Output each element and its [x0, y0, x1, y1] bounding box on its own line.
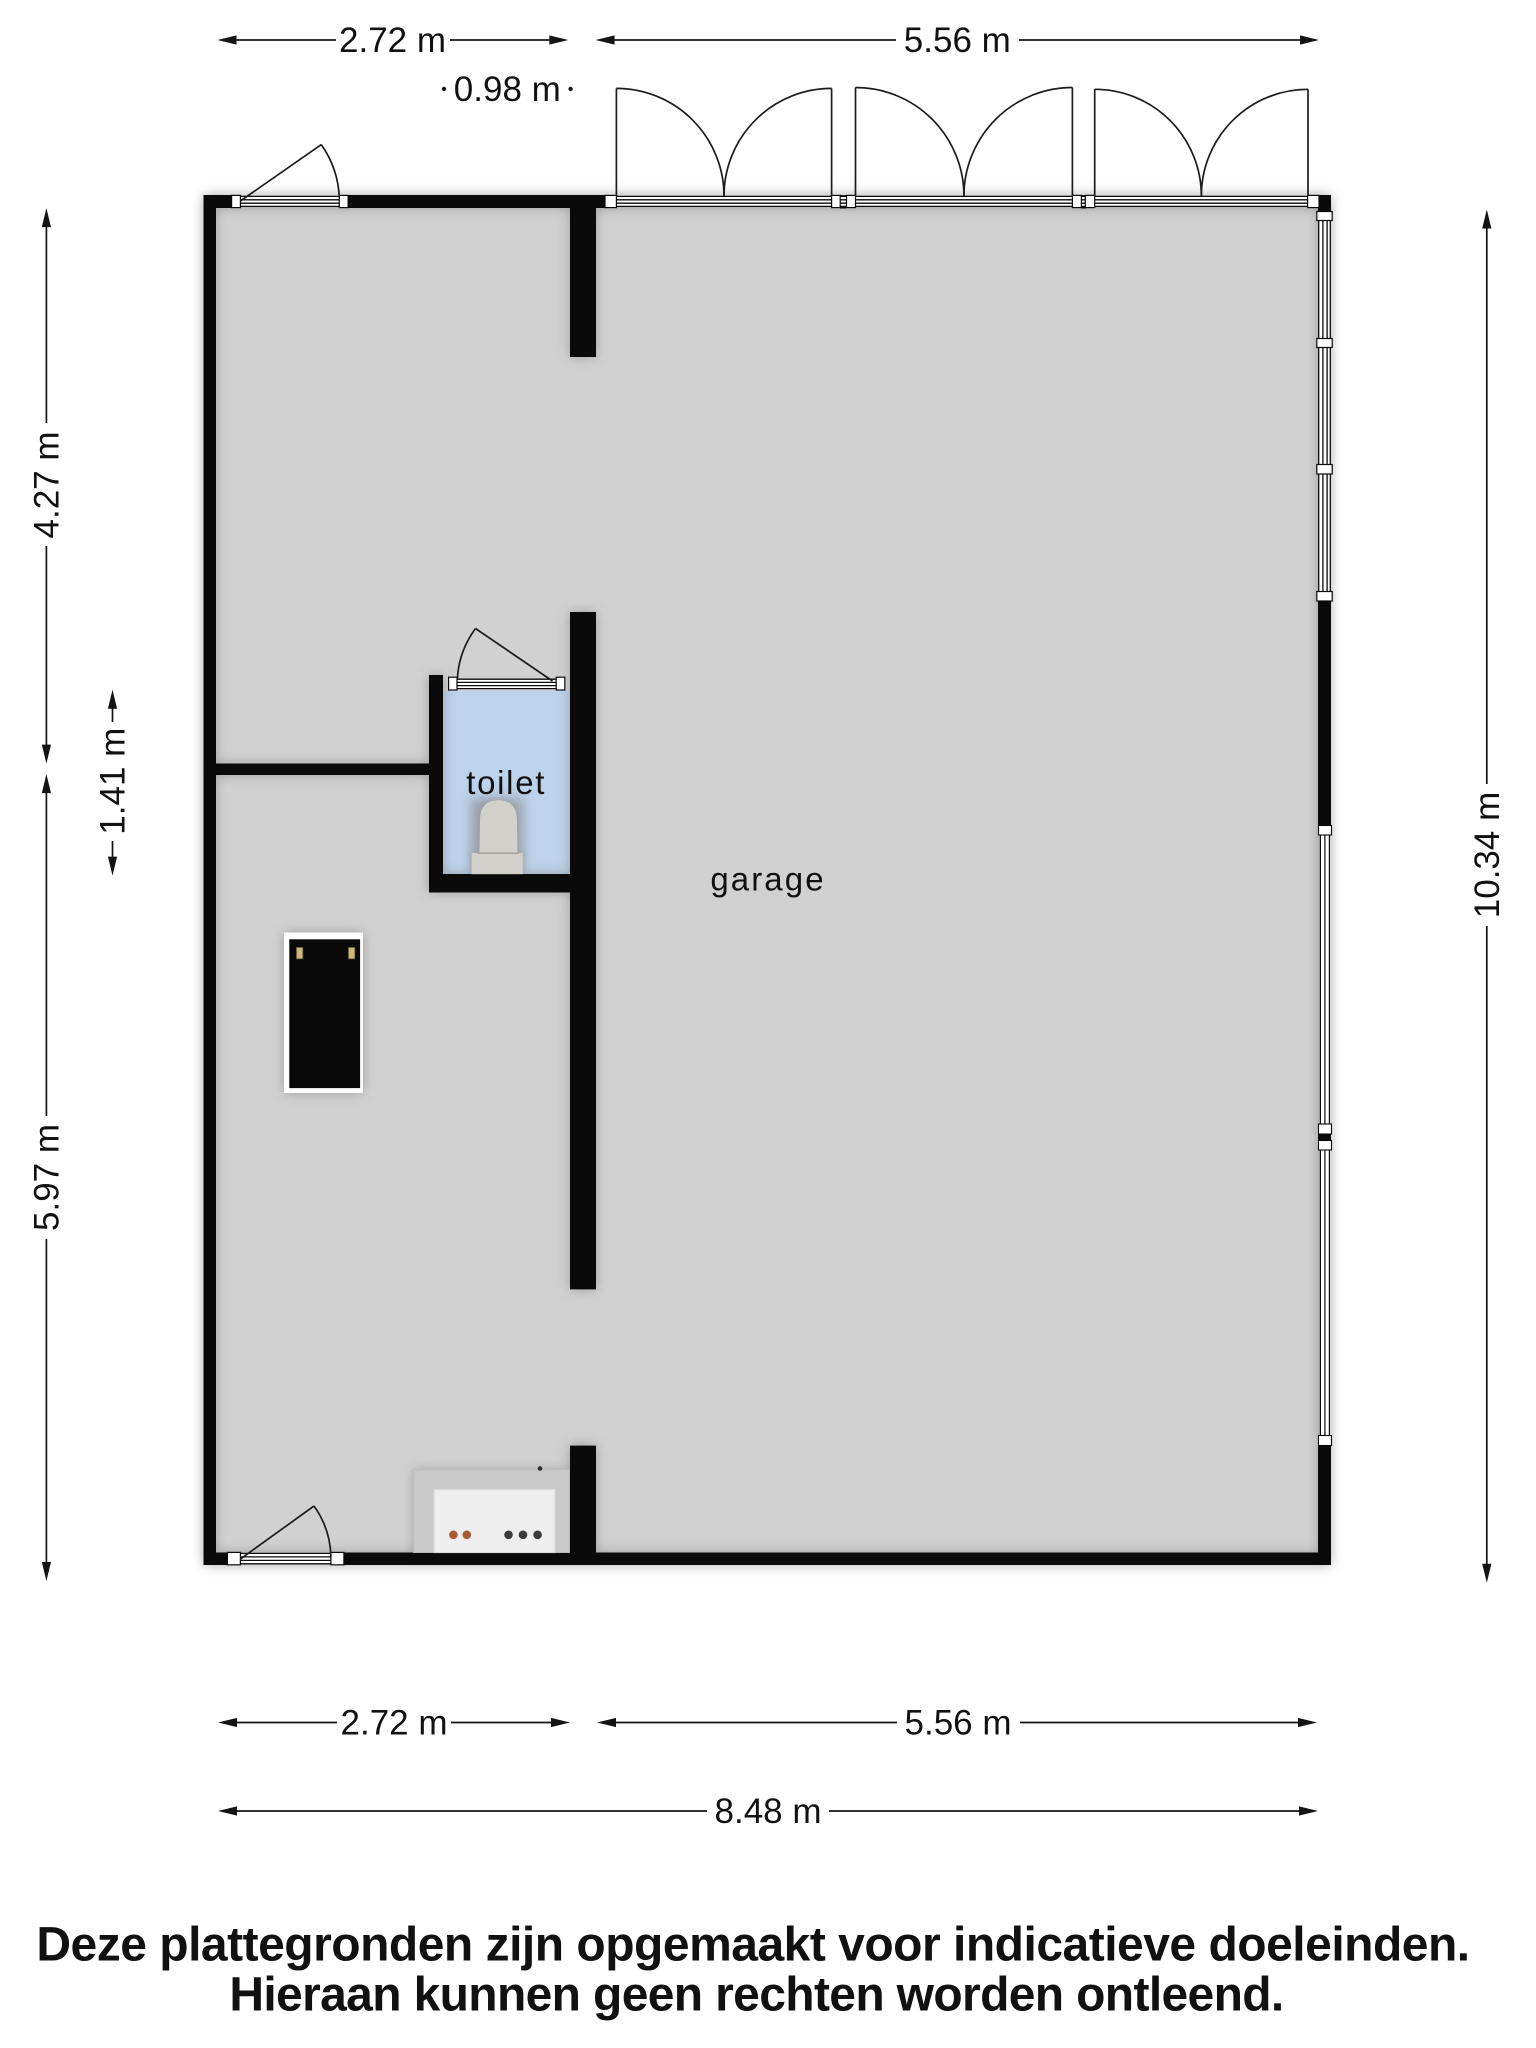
- svg-text:Deze plattegronden zijn opgema: Deze plattegronden zijn opgemaakt voor i…: [36, 1918, 1469, 1971]
- svg-text:5.97 m: 5.97 m: [27, 1124, 66, 1231]
- svg-text:5.56 m: 5.56 m: [905, 1704, 1012, 1743]
- svg-text:10.34 m: 10.34 m: [1468, 792, 1507, 918]
- svg-text:4.27 m: 4.27 m: [27, 432, 66, 539]
- svg-text:garage: garage: [710, 861, 825, 898]
- svg-text:2.72 m: 2.72 m: [341, 1704, 448, 1743]
- svg-text:8.48 m: 8.48 m: [715, 1792, 822, 1831]
- svg-text:1.41 m: 1.41 m: [94, 728, 133, 835]
- svg-text:0.98 m: 0.98 m: [454, 70, 561, 109]
- svg-text:Hieraan kunnen geen rechten wo: Hieraan kunnen geen rechten worden ontle…: [229, 1969, 1283, 2022]
- svg-text:2.72 m: 2.72 m: [339, 21, 446, 60]
- svg-text:5.56 m: 5.56 m: [904, 21, 1011, 60]
- svg-text:toilet: toilet: [466, 764, 546, 801]
